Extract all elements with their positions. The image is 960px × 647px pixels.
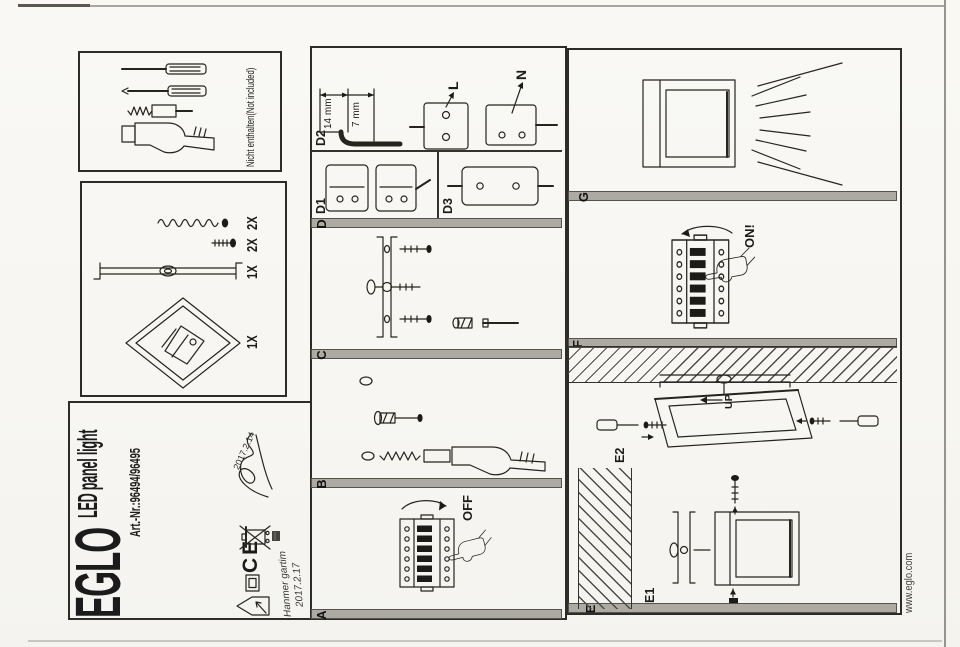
parts-drawing [94,219,242,389]
line-art [0,0,960,647]
stamp-mark [272,531,280,541]
page-edge-bottom [28,640,942,642]
step-a-drawing [400,501,495,591]
step-b-drawing [360,377,545,475]
manual-stage: EGLO LED panel light Art.-Nr.:96494/9649… [0,0,960,647]
weee-bin-icon [240,526,270,549]
step-e2-drawing [597,375,878,447]
step-d2-drawing [320,82,557,149]
step-d3-drawing [448,167,553,205]
page-edge-right [944,0,946,647]
step-e1-drawing [670,475,799,603]
indoor-installation-icon [237,597,269,615]
signature [239,433,272,497]
page-edge-top [18,5,946,7]
tools-drawing [122,64,214,153]
step-d1-drawing [326,165,430,211]
step-f-drawing [672,226,758,328]
page-edge-top-left [18,4,90,7]
step-g-drawing [643,63,842,185]
step-c-drawing [367,237,518,337]
class-ii-icon [246,575,259,591]
scanned-manual-page: EGLO LED panel light Art.-Nr.:96494/9649… [0,0,960,647]
light-rays [752,63,842,185]
